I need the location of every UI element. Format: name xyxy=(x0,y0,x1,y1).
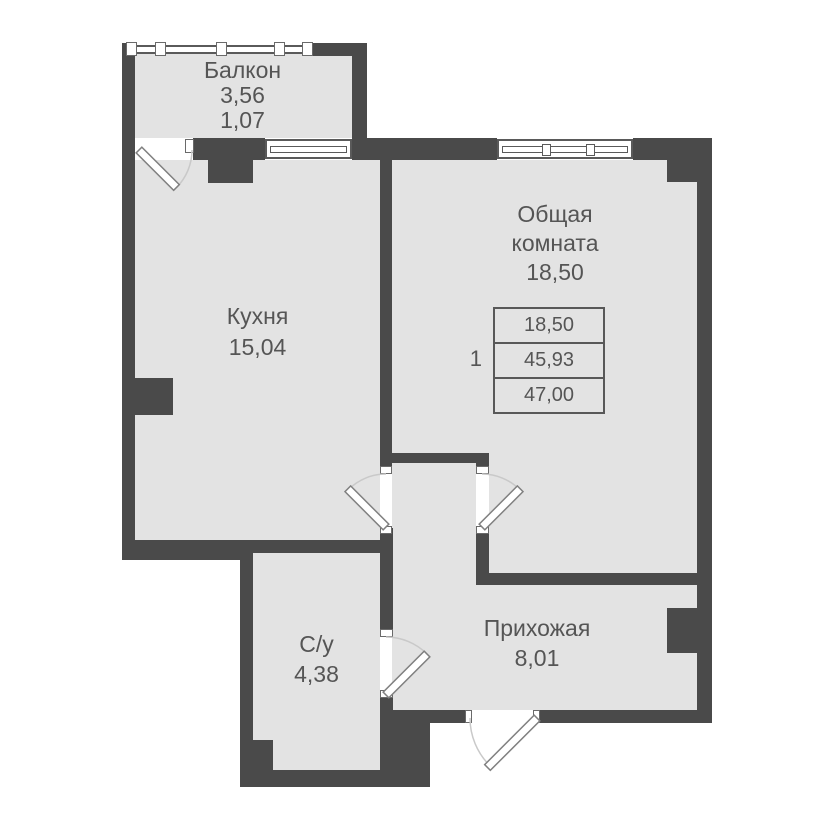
wall-balcony-right xyxy=(352,43,367,138)
bathroom-label: С/у 4,38 xyxy=(253,629,380,689)
window-mullion xyxy=(542,144,551,156)
door-post xyxy=(380,526,392,534)
hallway-label: Прихожая 8,01 xyxy=(392,613,682,673)
living-room-label: Общая комната 18,50 xyxy=(405,200,705,287)
railing-post xyxy=(274,42,285,56)
railing-post xyxy=(126,42,137,56)
living-window-glass xyxy=(502,146,628,153)
door-post xyxy=(476,466,489,474)
bathroom-area: 4,38 xyxy=(253,659,380,689)
door-post xyxy=(185,139,194,153)
kitchen-name: Кухня xyxy=(135,301,380,332)
summary-row-total-area: 47,00 xyxy=(495,377,603,412)
living-name-line1: Общая xyxy=(405,200,705,229)
railing-post xyxy=(155,42,166,56)
door-post xyxy=(533,710,540,723)
balcony-name: Балкон xyxy=(133,58,352,83)
area-summary-table: 18,50 45,93 47,00 xyxy=(493,307,605,414)
wall-top-middle xyxy=(352,138,497,160)
door-post xyxy=(380,690,393,698)
bathroom-name: С/у xyxy=(253,629,380,659)
door-post xyxy=(476,526,489,534)
railing-post xyxy=(216,42,227,56)
kitchen-area: 15,04 xyxy=(135,332,380,363)
wall-bathroom-corner-block xyxy=(380,710,430,787)
door-leaf xyxy=(485,715,540,770)
wall-kitchen-top-1 xyxy=(193,138,265,160)
hallway-area: 8,01 xyxy=(392,643,682,673)
kitchen-window xyxy=(265,139,352,159)
window-mullion xyxy=(586,144,595,156)
floor-plan: Балкон 3,56 1,07 Кухня 15,04 Общая комна… xyxy=(0,0,828,828)
wall-divider-kitchen-living xyxy=(380,160,392,473)
unit-number: 1 xyxy=(450,346,482,372)
summary-row-living-area: 18,50 xyxy=(495,309,603,342)
door-post xyxy=(465,710,472,723)
balcony-label: Балкон 3,56 1,07 xyxy=(133,58,352,133)
summary-row-usable-area: 45,93 xyxy=(495,342,603,377)
living-area: 18,50 xyxy=(405,258,705,287)
railing-post xyxy=(302,42,313,56)
balcony-area-reduced: 1,07 xyxy=(133,108,352,133)
wall-kitchen-top-pier xyxy=(208,160,253,183)
door-post xyxy=(380,466,392,474)
wall-living-bottom xyxy=(476,573,712,585)
kitchen-label: Кухня 15,04 xyxy=(135,301,380,363)
wall-kitchen-left-pier xyxy=(122,378,173,415)
balcony-area: 3,56 xyxy=(133,83,352,108)
entrance-door xyxy=(470,715,540,770)
hallway-name: Прихожая xyxy=(392,613,682,643)
living-window xyxy=(497,139,633,159)
living-name-line2: комната xyxy=(405,229,705,258)
wall-hallway-bottom-right xyxy=(540,710,712,723)
living-door-opening xyxy=(476,473,489,528)
wall-corridor-top xyxy=(380,453,484,463)
kitchen-window-glass xyxy=(270,146,347,153)
wall-step-block xyxy=(122,540,253,560)
door-swing-arc xyxy=(470,718,490,765)
wall-hallway-bottom-left xyxy=(430,710,465,723)
